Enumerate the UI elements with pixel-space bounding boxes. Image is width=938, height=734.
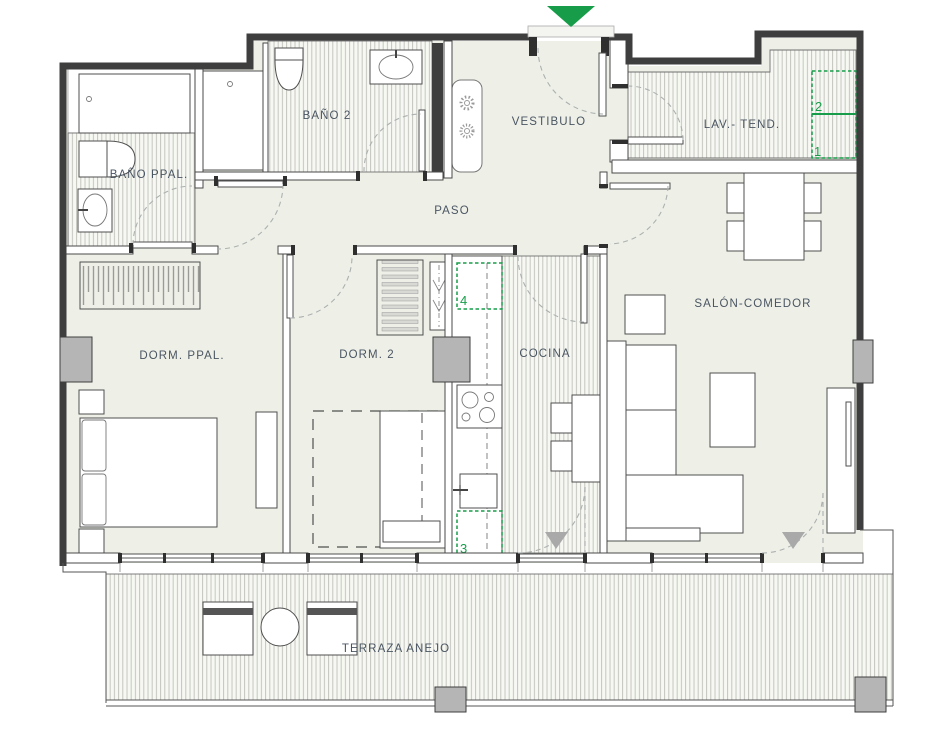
tv-screen	[846, 402, 851, 466]
pillar	[435, 687, 466, 712]
window-dorm-ppal	[118, 553, 265, 563]
sofa-cushion	[626, 345, 676, 410]
pillar	[60, 337, 92, 382]
room-label-dorm-2: DORM. 2	[339, 349, 395, 361]
bathtub	[79, 74, 190, 133]
heater-unit	[452, 80, 482, 172]
window-cocina	[516, 553, 587, 563]
toilet-tank	[79, 141, 107, 177]
dining-table	[744, 173, 804, 260]
shower	[203, 71, 263, 170]
room-label-vestibulo: VESTIBULO	[512, 116, 586, 128]
kitchen-peninsula	[572, 395, 600, 482]
side-table	[625, 295, 665, 334]
cooktop	[457, 385, 502, 428]
floor-plan-canvas: 2 1 4 3	[0, 0, 938, 734]
dining-chair	[804, 221, 821, 251]
room-label-bano-ppal: BAÑO PPAL.	[110, 168, 189, 181]
pillar	[855, 677, 886, 712]
bathtub-drain	[87, 97, 92, 102]
sofa-cushion	[626, 410, 676, 475]
room-label-dorm-ppal: DORM. PPAL.	[139, 350, 224, 362]
room-label-salon-comedor: SALÓN-COMEDOR	[694, 297, 811, 310]
floor-plan: 2 1 4 3	[0, 0, 938, 734]
shelf-wardrobe	[377, 260, 423, 335]
nightstand	[79, 529, 104, 553]
pillar	[433, 337, 470, 382]
dining-chair	[804, 183, 821, 213]
marker-4: 4	[460, 293, 467, 308]
window-dorm-2	[306, 553, 419, 563]
dresser	[256, 412, 277, 508]
dining-chair	[727, 183, 744, 213]
room-label-paso: PASO	[434, 205, 470, 217]
room-label-terraza: TERRAZA ANEJO	[342, 643, 450, 655]
shower-drain	[228, 82, 233, 87]
window-ledge-lines	[120, 563, 823, 572]
marker-2: 2	[815, 99, 822, 114]
terrace-table	[261, 608, 299, 646]
room-label-cocina: COCINA	[519, 348, 570, 360]
pillar	[853, 340, 873, 383]
dining-chair	[727, 221, 744, 251]
marker-1: 1	[814, 144, 821, 159]
chair-back	[307, 608, 357, 615]
room-label-lav-tend: LAV.- TEND.	[704, 119, 780, 131]
entrance-arrow-icon	[547, 6, 595, 27]
sofa-back-bottom	[626, 528, 700, 541]
nightstand	[79, 390, 104, 414]
wardrobe	[80, 262, 200, 309]
toilet-tank	[275, 48, 303, 60]
pillow	[82, 420, 106, 471]
stool	[551, 441, 573, 471]
stool	[551, 403, 573, 433]
sofa-seat	[626, 475, 743, 533]
bed-foot-shelf	[383, 521, 440, 542]
room-label-bano-2: BAÑO 2	[303, 109, 352, 122]
coffee-table	[710, 373, 755, 447]
pillow	[82, 474, 106, 525]
chair-back	[203, 608, 253, 615]
